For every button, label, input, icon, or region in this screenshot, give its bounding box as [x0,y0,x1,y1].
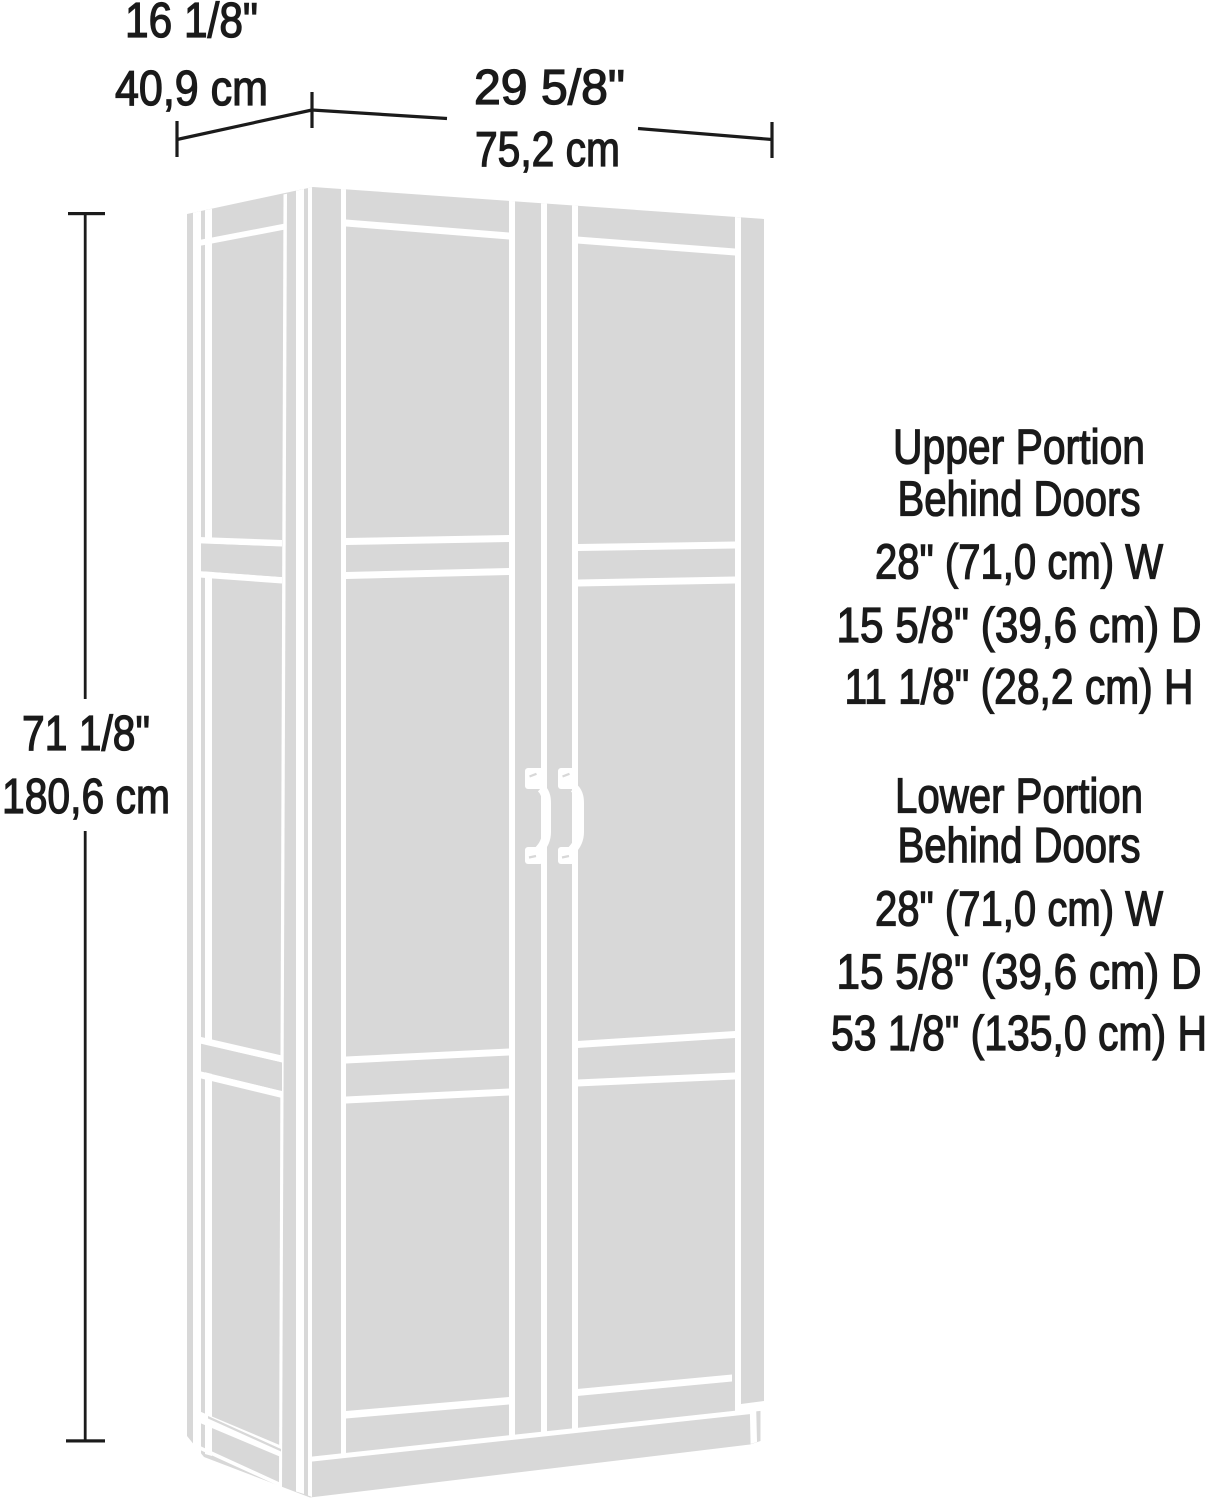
svg-text:29 5/8": 29 5/8" [474,61,625,115]
svg-text:Lower Portion: Lower Portion [895,770,1143,824]
svg-text:180,6 cm: 180,6 cm [2,770,170,824]
svg-text:15 5/8" (39,6 cm) D: 15 5/8" (39,6 cm) D [837,599,1202,653]
svg-text:15 5/8" (39,6 cm) D: 15 5/8" (39,6 cm) D [837,946,1202,1000]
svg-text:28" (71,0 cm) W: 28" (71,0 cm) W [875,883,1164,937]
svg-text:75,2 cm: 75,2 cm [475,123,620,177]
svg-text:71 1/8": 71 1/8" [22,707,150,761]
svg-text:Upper Portion: Upper Portion [893,421,1145,475]
svg-text:28" (71,0 cm) W: 28" (71,0 cm) W [875,536,1164,590]
svg-text:Behind Doors: Behind Doors [898,819,1141,873]
svg-text:11 1/8" (28,2 cm) H: 11 1/8" (28,2 cm) H [845,661,1194,715]
svg-text:53 1/8" (135,0 cm) H: 53 1/8" (135,0 cm) H [831,1007,1207,1061]
svg-text:Behind Doors: Behind Doors [898,473,1141,527]
svg-text:16 1/8": 16 1/8" [125,0,258,48]
svg-text:40,9 cm: 40,9 cm [115,62,268,116]
